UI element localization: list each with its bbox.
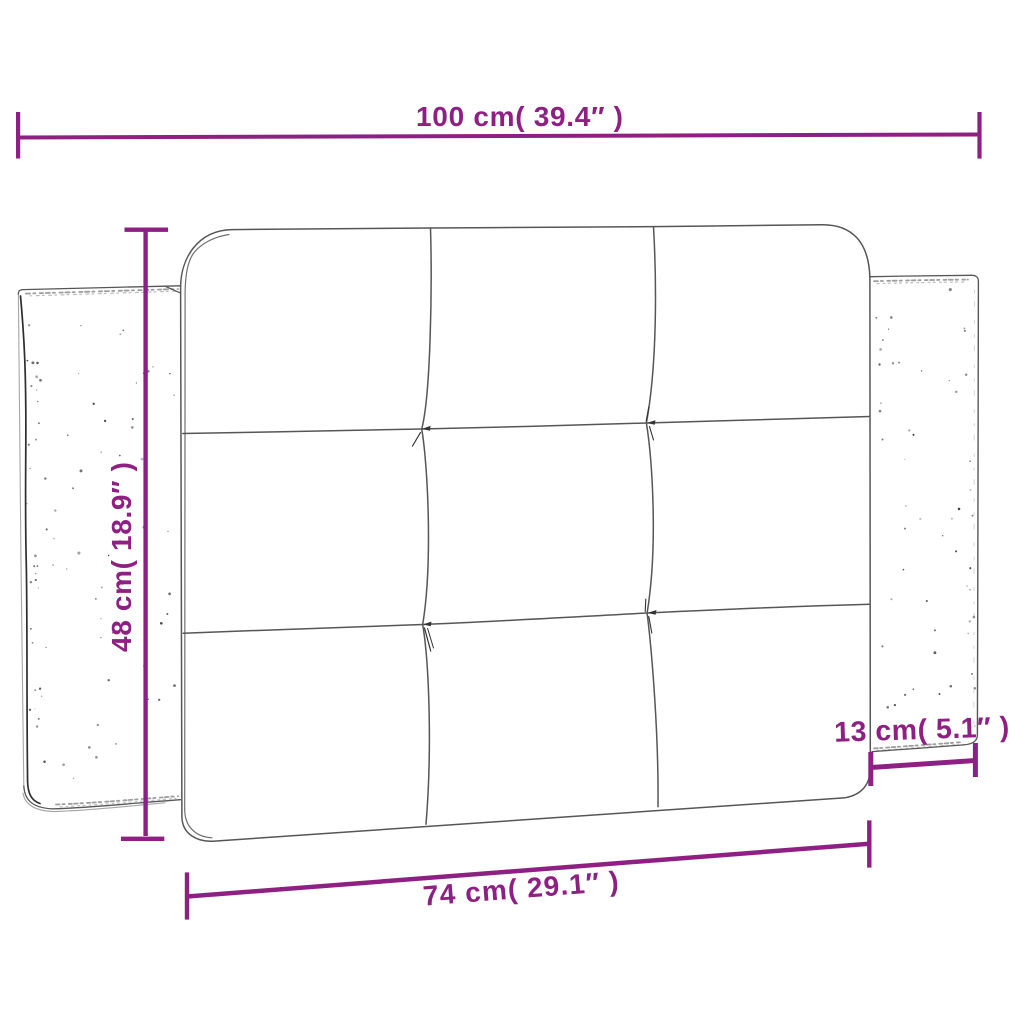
svg-text:48 cm( 18.9″ ): 48 cm( 18.9″ ) xyxy=(106,462,137,652)
svg-text:100 cm( 39.4″ ): 100 cm( 39.4″ ) xyxy=(416,101,623,132)
svg-text:13 cm( 5.1″ ): 13 cm( 5.1″ ) xyxy=(834,711,1010,748)
